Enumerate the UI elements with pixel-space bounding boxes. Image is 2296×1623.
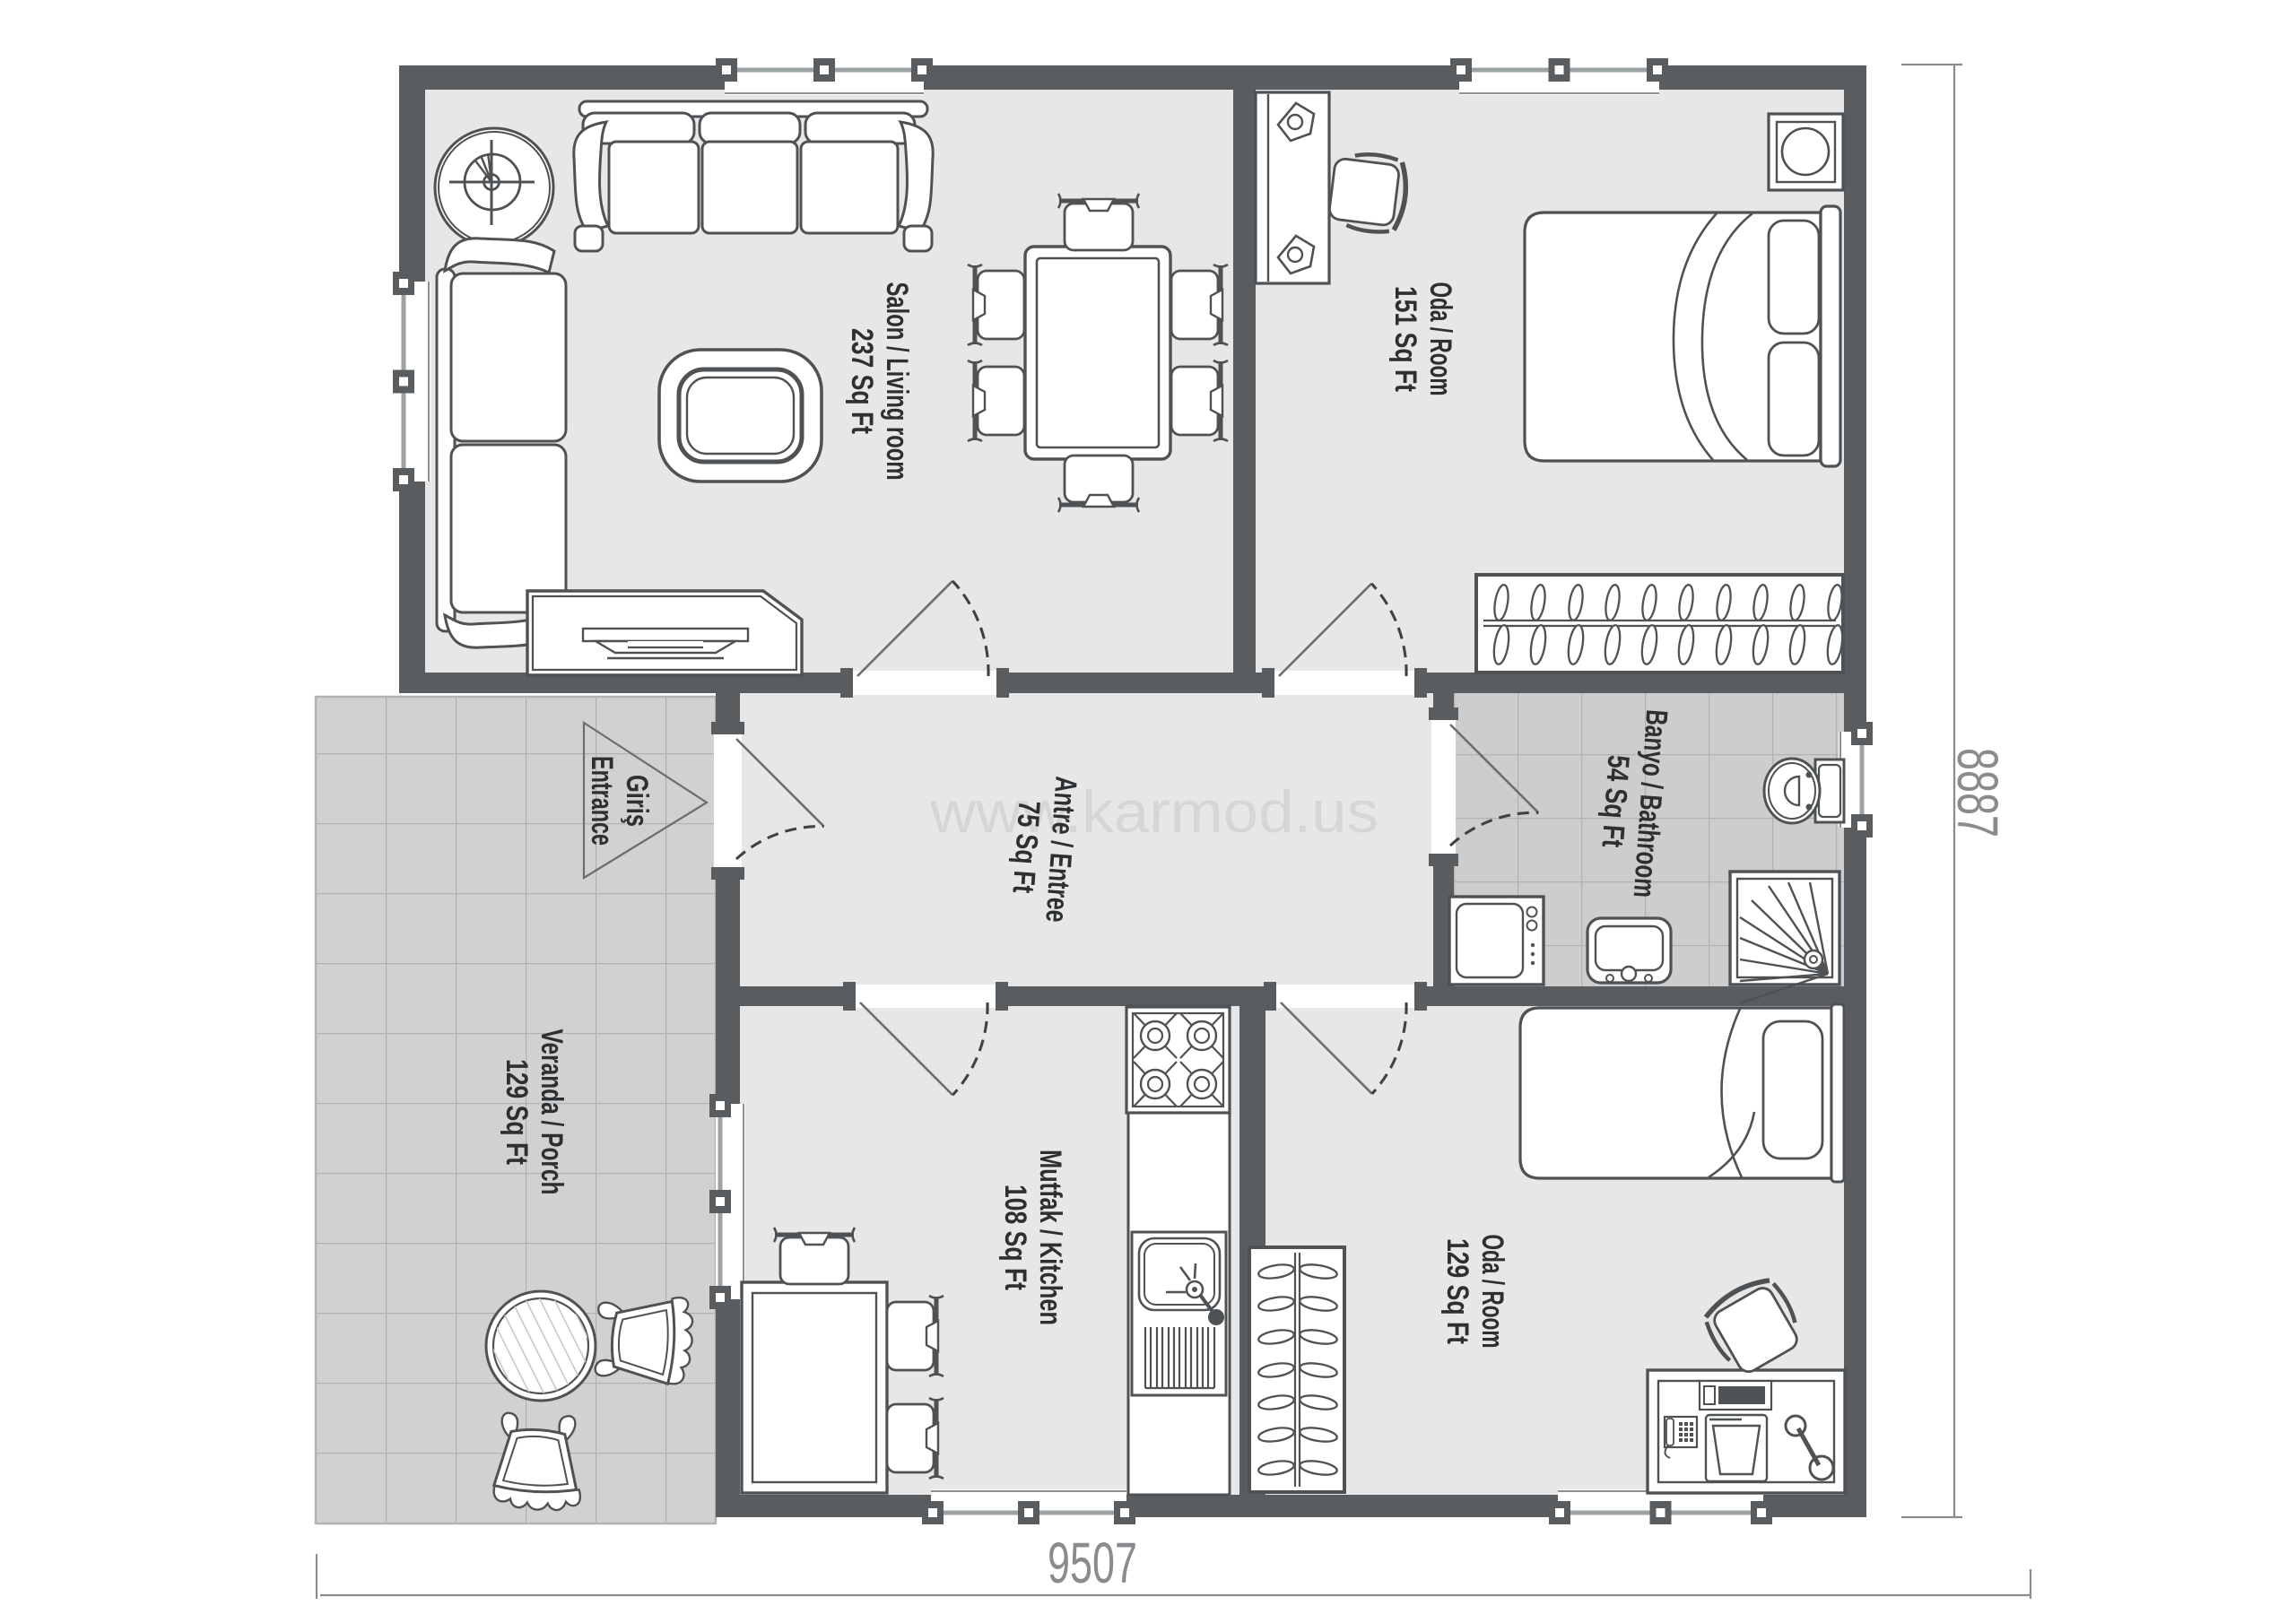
- svg-text:Oda / Room: Oda / Room: [1475, 1235, 1509, 1349]
- svg-text:Salon / Living room: Salon / Living room: [880, 282, 914, 481]
- svg-text:Mutfak / Kitchen: Mutfak / Kitchen: [1033, 1150, 1067, 1325]
- svg-text:8887: 8887: [1945, 748, 2010, 838]
- svg-text:129 Sq Ft: 129 Sq Ft: [500, 1059, 534, 1165]
- svg-text:54 Sq Ft: 54 Sq Ft: [1596, 754, 1636, 848]
- svg-text:Veranda / Porch: Veranda / Porch: [535, 1029, 569, 1195]
- svg-text:237 Sq Ft: 237 Sq Ft: [845, 328, 879, 434]
- svg-text:www.karmod.us: www.karmod.us: [929, 778, 1378, 845]
- svg-text:Entrance: Entrance: [585, 756, 619, 846]
- svg-text:Oda / Room: Oda / Room: [1423, 282, 1457, 396]
- svg-text:9507: 9507: [1048, 1531, 1137, 1595]
- svg-text:75 Sq Ft: 75 Sq Ft: [1006, 800, 1047, 894]
- svg-text:129 Sq Ft: 129 Sq Ft: [1440, 1238, 1474, 1344]
- svg-text:151 Sq Ft: 151 Sq Ft: [1388, 286, 1422, 392]
- svg-text:108 Sq Ft: 108 Sq Ft: [998, 1185, 1032, 1290]
- svg-text:Giriş: Giriş: [620, 775, 654, 827]
